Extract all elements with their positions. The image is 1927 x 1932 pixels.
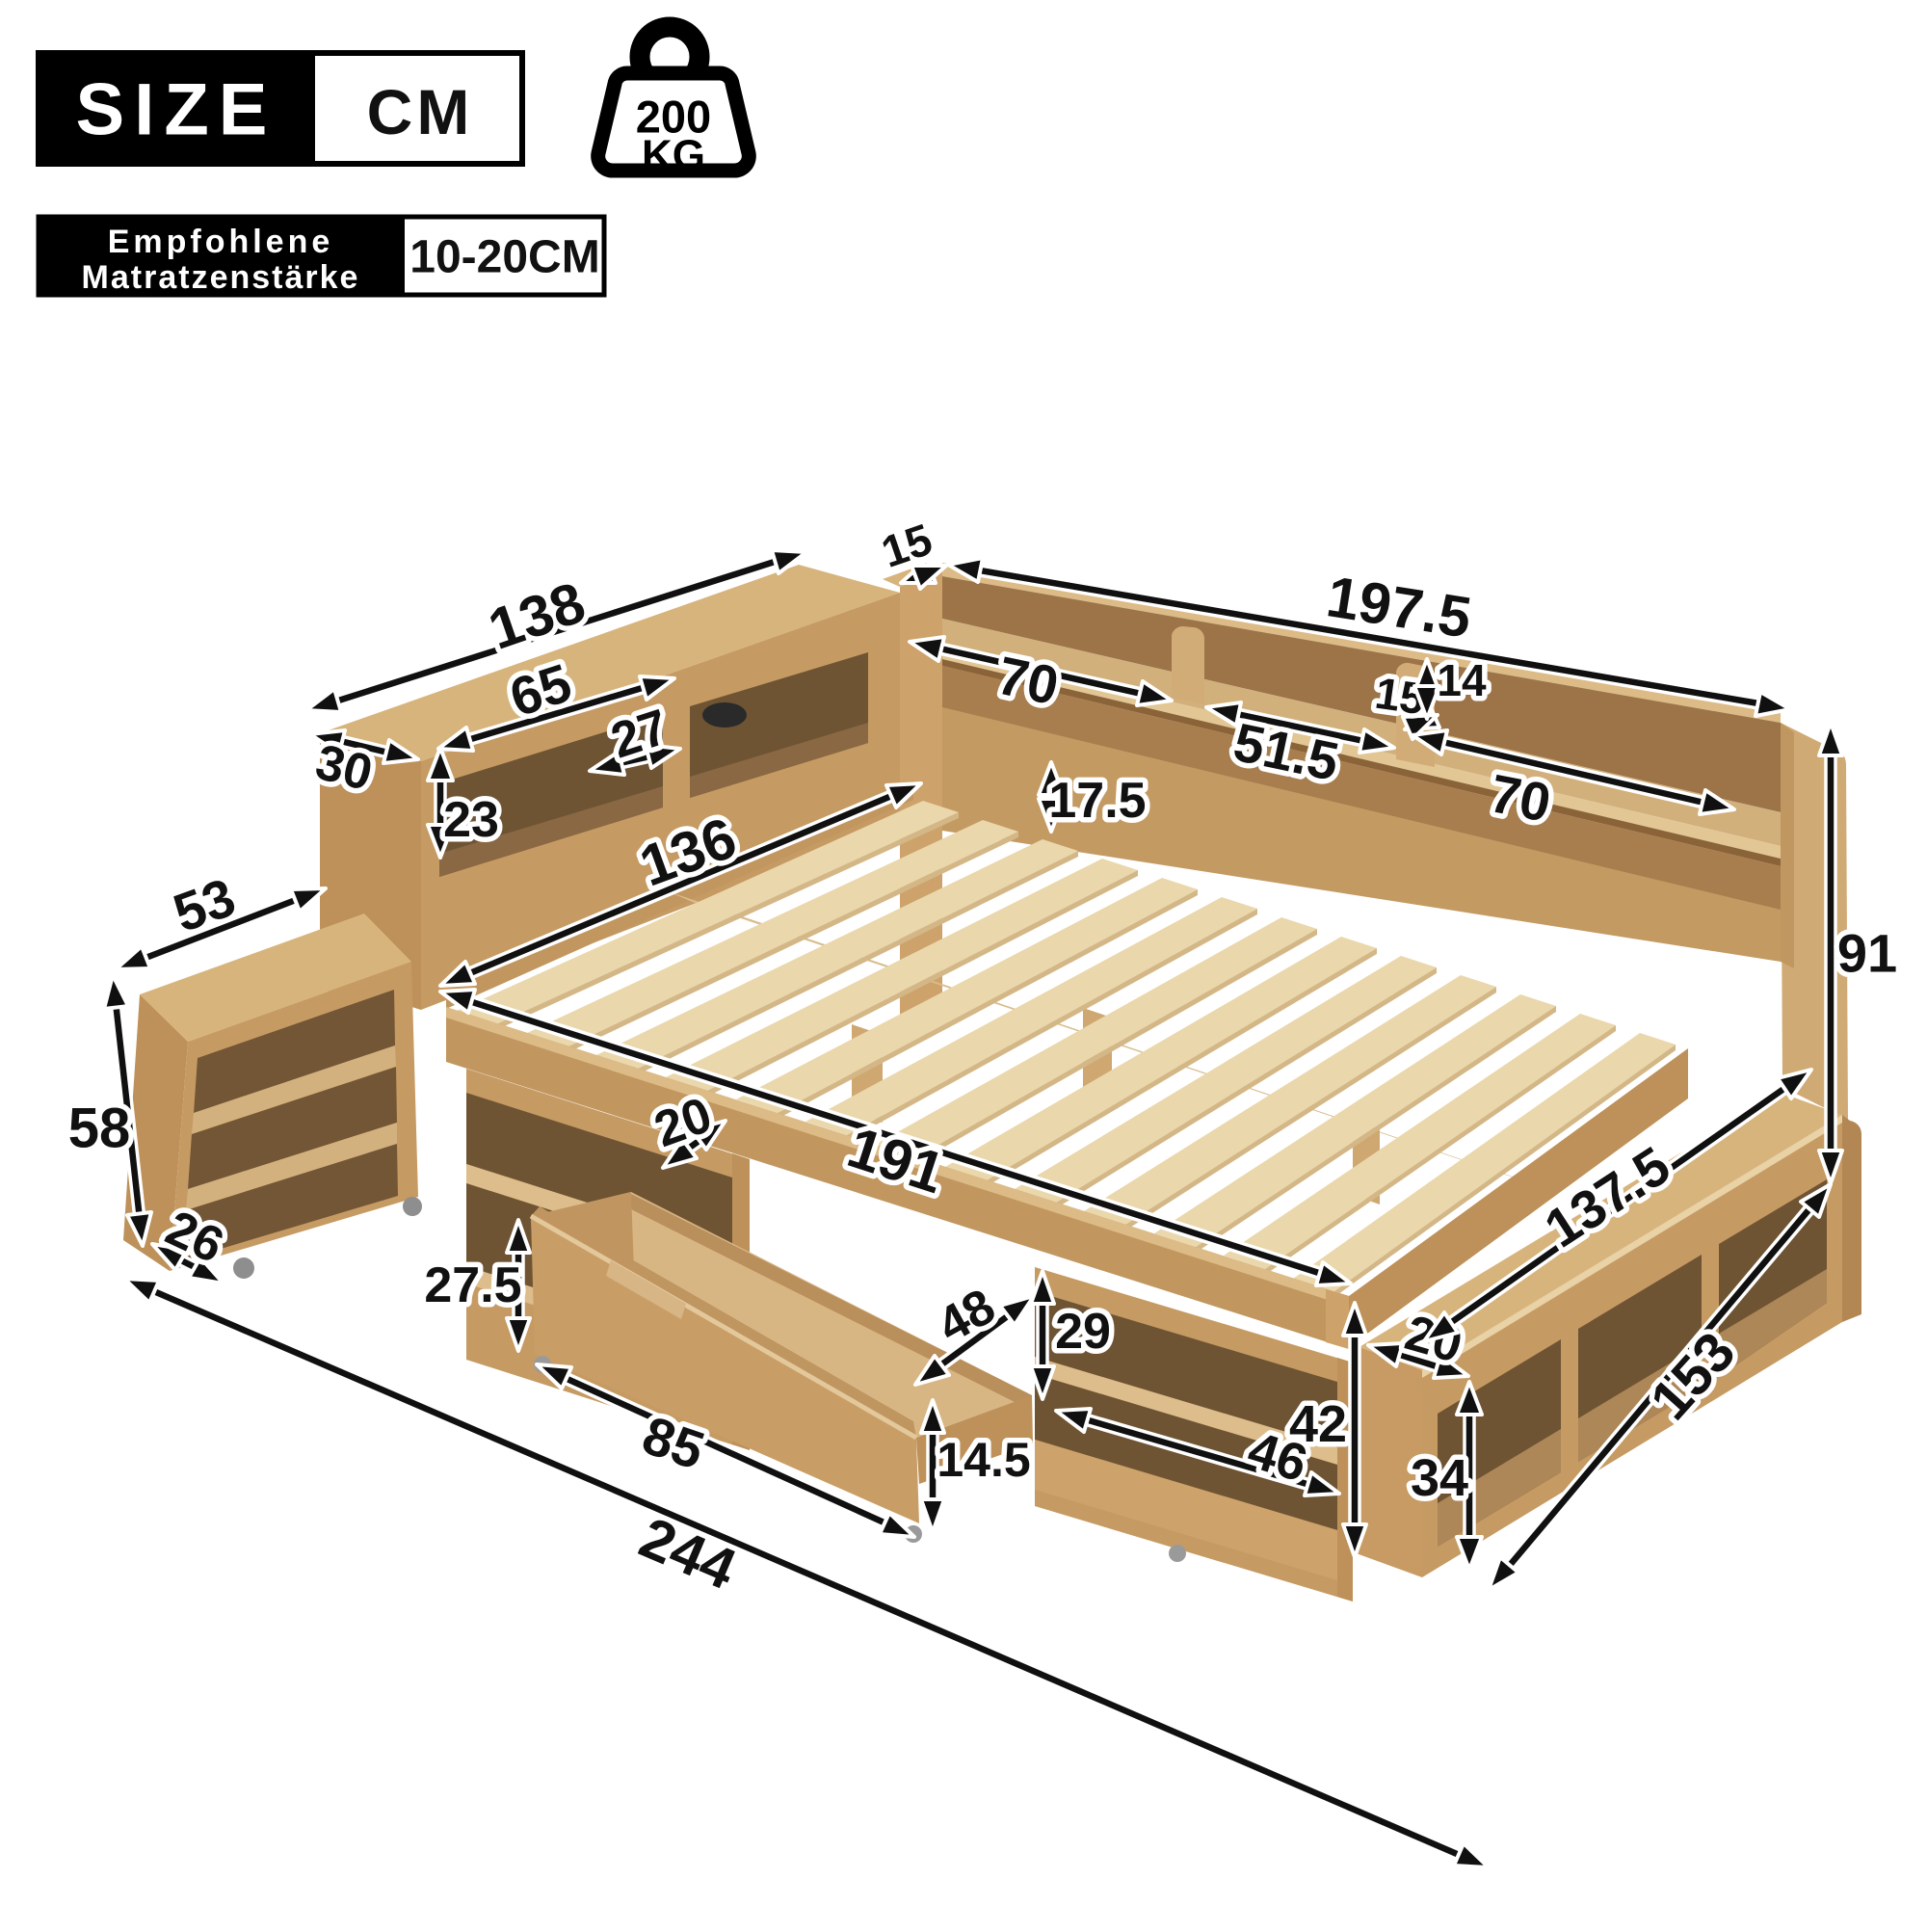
svg-text:SIZE: SIZE (76, 69, 277, 151)
svg-text:34: 34 (1411, 1449, 1468, 1507)
svg-text:91: 91 (1837, 923, 1897, 984)
svg-text:27.5: 27.5 (424, 1257, 521, 1313)
svg-text:29: 29 (1055, 1304, 1111, 1360)
svg-text:17.5: 17.5 (1048, 773, 1146, 829)
svg-text:Empfohlene: Empfohlene (108, 224, 334, 260)
svg-text:10-20CM: 10-20CM (409, 232, 599, 283)
svg-text:14.5: 14.5 (937, 1433, 1030, 1487)
svg-text:58: 58 (68, 1098, 131, 1160)
svg-text:23: 23 (443, 792, 499, 848)
svg-text:14: 14 (1437, 655, 1487, 705)
svg-text:70: 70 (992, 645, 1064, 717)
svg-text:CM: CM (367, 76, 474, 147)
svg-text:70: 70 (1485, 762, 1555, 834)
svg-text:Matratzenstärke: Matratzenstärke (82, 259, 360, 296)
svg-text:42: 42 (1289, 1395, 1347, 1453)
svg-text:KG: KG (642, 132, 705, 179)
